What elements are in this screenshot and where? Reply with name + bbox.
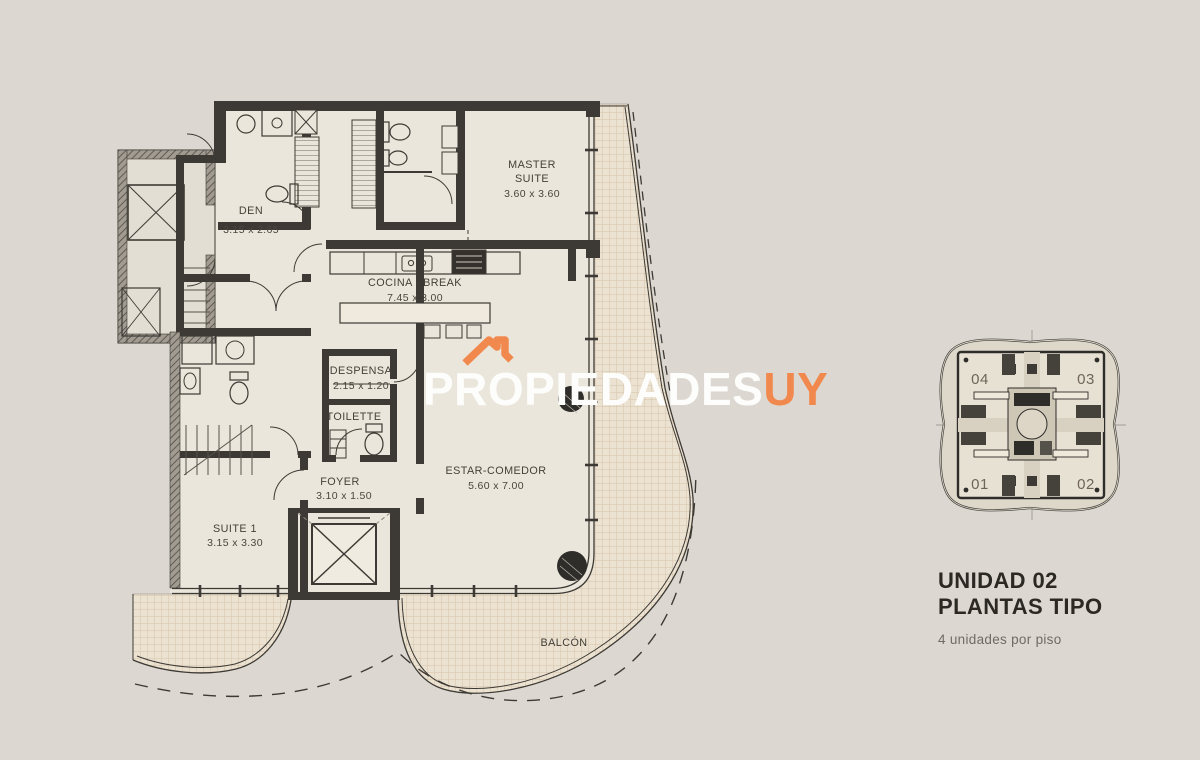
room-label-suite1: SUITE 1 — [213, 523, 257, 535]
room-dims-master: 3.60 x 3.60 — [504, 188, 560, 200]
common-core-block — [118, 150, 215, 343]
units-per-floor-note: 4 unidades por piso — [938, 632, 1103, 647]
room-label-toilette: TOILETTE — [327, 411, 382, 423]
room-label-despensa: DESPENSA — [330, 365, 393, 377]
unit-info-panel: UNIDAD 02 PLANTAS TIPO 4 unidades por pi… — [938, 568, 1103, 647]
room-label-cocina: COCINA - BREAK — [368, 277, 462, 289]
room-dims-suite1: 3.15 x 3.30 — [207, 537, 263, 549]
keyplan-unit-01: 01 — [971, 476, 989, 493]
room-label-den: DEN — [239, 205, 263, 217]
keyplan-unit-03: 03 — [1077, 371, 1095, 388]
unit-title-line1: UNIDAD 02 — [938, 568, 1103, 594]
room-dims-despensa: 2.15 x 1.20 — [333, 380, 389, 392]
brand-suffix: UY — [763, 363, 828, 415]
floorplan-sheet: DEN 3.15 x 2.65 MASTER SUITE 3.60 x 3.60… — [0, 0, 1200, 760]
room-label-master-line1: MASTER — [508, 159, 556, 171]
room-dims-den: 3.15 x 2.65 — [223, 224, 279, 236]
room-dims-estar: 5.60 x 7.00 — [468, 480, 524, 492]
room-label-foyer: FOYER — [320, 476, 359, 488]
keyplan-unit-02: 02 — [1077, 476, 1095, 493]
room-label-estar: ESTAR-COMEDOR — [445, 465, 546, 477]
keyplan-unit-04: 04 — [971, 371, 989, 388]
hatched-left-wall — [170, 332, 180, 588]
room-dims-cocina: 7.45 x 3.00 — [387, 292, 443, 304]
room-label-balcon: BALCÓN — [540, 636, 587, 649]
room-label-master-line2: SUITE — [515, 173, 549, 185]
unit-title-line2: PLANTAS TIPO — [938, 594, 1103, 620]
room-dims-foyer: 3.10 x 1.50 — [316, 490, 372, 502]
brand-name: PROPIEDADES — [423, 363, 763, 415]
keyplan: 04 03 01 02 — [936, 330, 1126, 520]
brand-watermark: PROPIEDADESUY — [423, 362, 828, 416]
